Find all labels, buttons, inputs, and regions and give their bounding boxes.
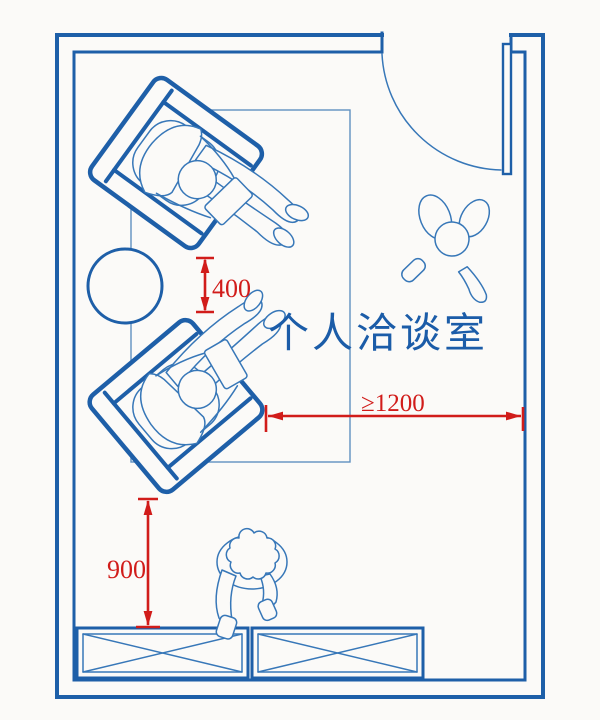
floor-plan-page: 400 ≥1200 900 个人洽谈室 xyxy=(0,0,600,720)
swing-door xyxy=(382,44,511,174)
standing-person-cabinet xyxy=(215,529,287,641)
dim-1200-label: ≥1200 xyxy=(361,390,425,417)
dim-900-label: 900 xyxy=(107,555,146,584)
dimension-900: 900 xyxy=(107,499,160,627)
standing-person-door xyxy=(397,187,497,303)
dim-400-label: 400 xyxy=(212,274,251,303)
room-label: 个人洽谈室 xyxy=(268,310,488,356)
door-leaf-icon xyxy=(503,44,511,174)
storage-cabinet-right xyxy=(252,628,423,678)
dimension-1200: ≥1200 xyxy=(266,390,523,432)
door-swing-arc xyxy=(382,54,501,170)
round-side-table xyxy=(88,249,162,323)
floor-plan-canvas: 400 ≥1200 900 个人洽谈室 xyxy=(0,0,600,720)
